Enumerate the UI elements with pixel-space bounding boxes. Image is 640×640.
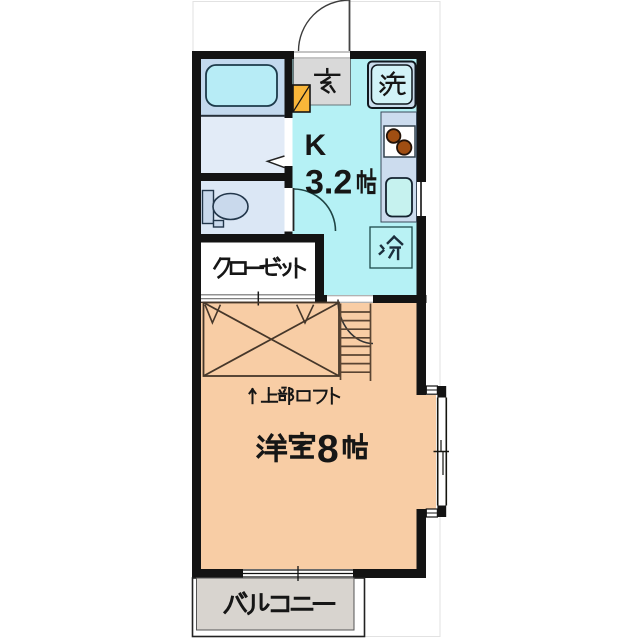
svg-text:K: K (305, 129, 327, 162)
svg-text:3.2: 3.2 (305, 164, 352, 202)
svg-text:8: 8 (317, 428, 339, 471)
